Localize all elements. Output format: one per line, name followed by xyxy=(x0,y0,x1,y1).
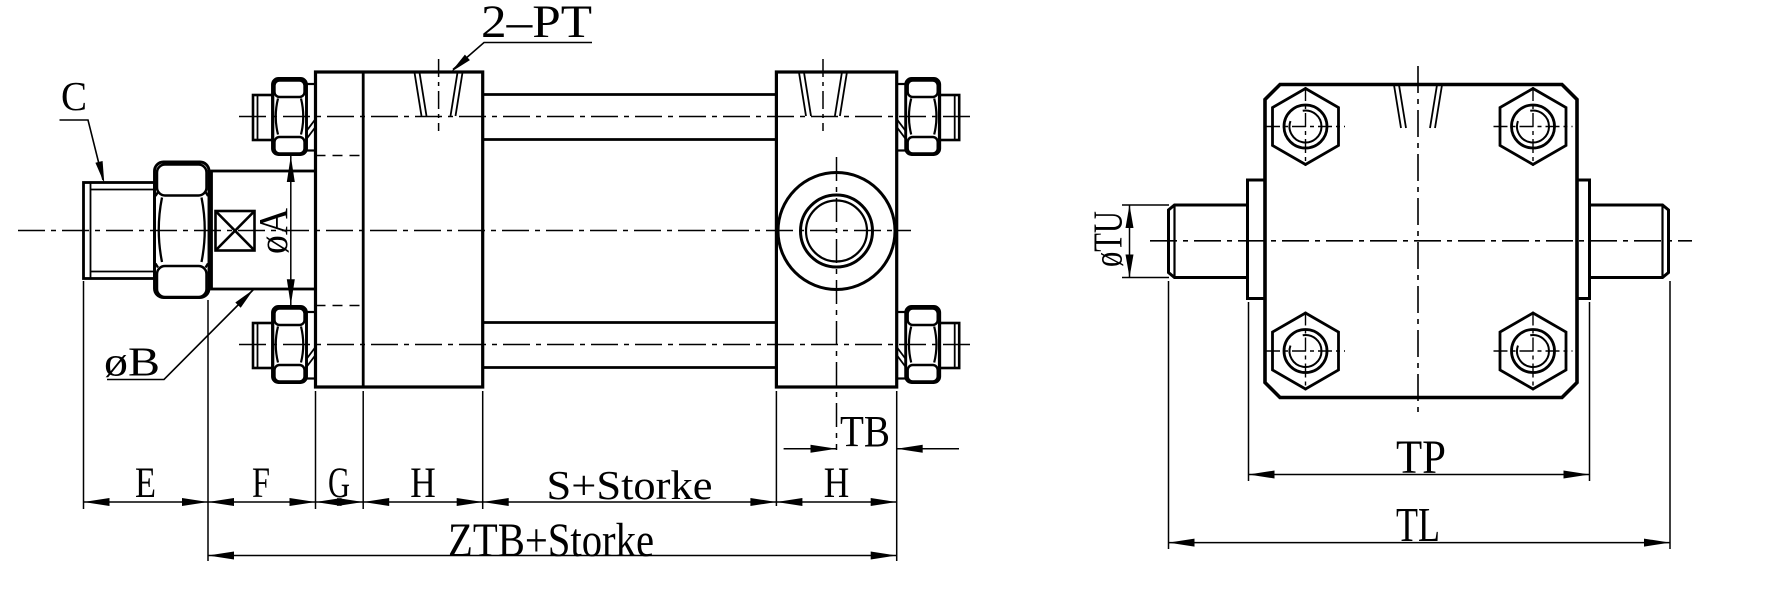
svg-text:ZTB+Storke: ZTB+Storke xyxy=(448,514,654,567)
svg-text:TL: TL xyxy=(1396,497,1440,552)
svg-text:F: F xyxy=(252,460,270,507)
svg-text:2–PT: 2–PT xyxy=(481,0,592,48)
svg-text:S+Storke: S+Storke xyxy=(547,462,713,508)
svg-text:E: E xyxy=(135,460,156,507)
svg-text:øTU: øTU xyxy=(1085,211,1131,267)
svg-text:TB: TB xyxy=(840,407,890,456)
svg-text:TP: TP xyxy=(1396,431,1446,484)
svg-text:G: G xyxy=(328,460,350,507)
svg-text:øA: øA xyxy=(250,208,296,254)
svg-text:H: H xyxy=(410,460,436,507)
svg-text:H: H xyxy=(824,460,850,507)
svg-text:C: C xyxy=(61,73,87,119)
svg-text:øB: øB xyxy=(104,339,160,385)
